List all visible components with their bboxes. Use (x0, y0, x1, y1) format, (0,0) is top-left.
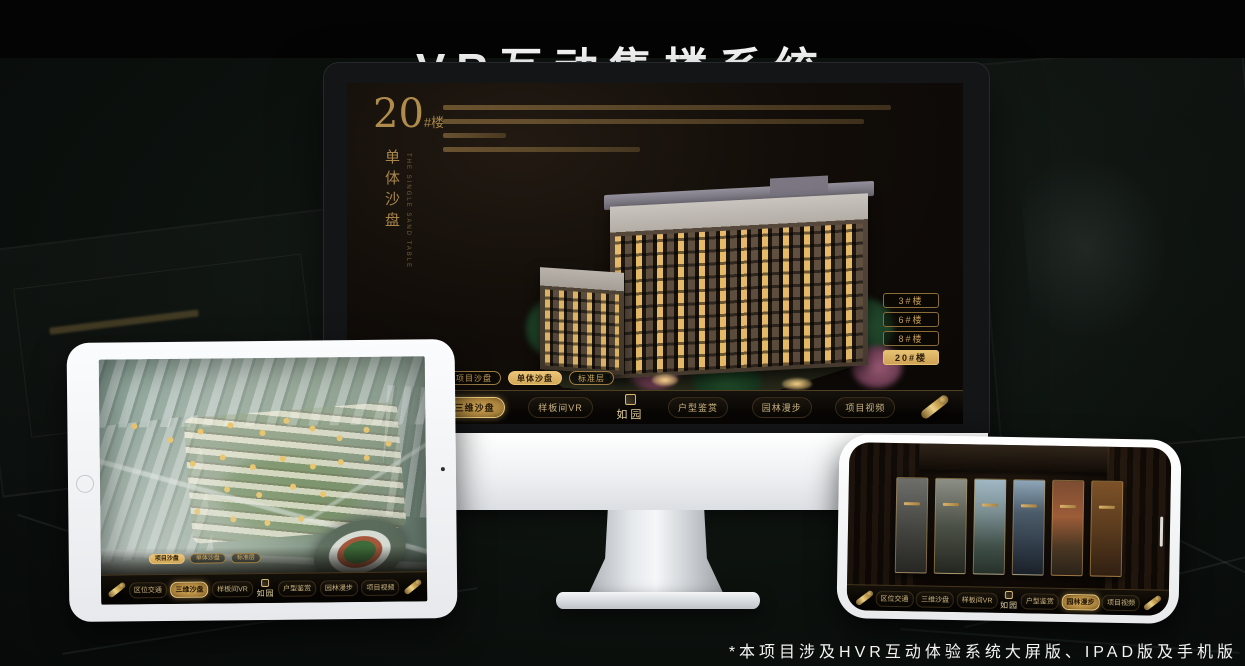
description-text-blur (443, 105, 891, 161)
sandbox-sub-tabs: 项目沙盘 单体沙盘 标准层 (447, 371, 614, 385)
phone-device: 区位交通 三维沙盘 样板间VR 如园 户型鉴赏 园林漫步 项目视频 (836, 434, 1181, 624)
nav-item-showroom-vr[interactable]: 样板间VR (957, 592, 998, 609)
footnote: *本项目涉及HVR互动体验系统大屏版、IPAD版及手机版 (729, 638, 1237, 662)
tab-standard-floor[interactable]: 标准层 (569, 371, 614, 385)
nav-item-location-traffic[interactable]: 区位交通 (875, 590, 913, 607)
nav-item-garden-walk[interactable]: 园林漫步 (752, 397, 812, 418)
nav-item-3d-sandbox[interactable]: 三维沙盘 (170, 581, 208, 597)
pavilion-beam (919, 443, 1109, 472)
tab-single-sandbox[interactable]: 单体沙盘 (508, 371, 562, 385)
nav-item-showroom-vr[interactable]: 样板间VR (212, 581, 253, 597)
scroll-icon[interactable] (855, 590, 873, 606)
card-caption (1021, 504, 1037, 507)
building-button-8[interactable]: 8#楼 (883, 331, 939, 346)
nav-item-garden-walk[interactable]: 园林漫步 (320, 580, 358, 596)
nav-item-garden-walk[interactable]: 园林漫步 (1061, 593, 1099, 610)
home-button[interactable] (76, 474, 94, 492)
tab-project-sandbox[interactable]: 项目沙盘 (149, 554, 185, 564)
building-heading: 20#楼 (373, 91, 444, 137)
plaque-text-blur (49, 310, 199, 335)
gallery-card[interactable] (934, 478, 968, 575)
tab-standard-floor[interactable]: 标准层 (231, 553, 261, 563)
brand-logo-text: 如园 (256, 587, 274, 598)
nav-item-floorplan-gallery[interactable]: 户型鉴赏 (668, 397, 728, 418)
building-penthouse (770, 175, 828, 194)
building-wing (540, 267, 624, 375)
scroll-icon[interactable] (1143, 595, 1161, 611)
brand-logo-text: 如园 (616, 406, 644, 422)
card-caption (943, 503, 959, 506)
nav-item-showroom-vr[interactable]: 样板间VR (528, 397, 593, 418)
camera-icon (441, 467, 445, 471)
card-caption (904, 502, 920, 505)
scroll-icon[interactable] (107, 582, 125, 598)
window-grid (545, 289, 619, 370)
nav-item-project-video[interactable]: 项目视频 (1102, 594, 1140, 611)
card-caption (1099, 506, 1115, 509)
brand-logo: 如园 (616, 394, 644, 422)
ground-light (652, 374, 678, 386)
nav-item-3d-sandbox[interactable]: 三维沙盘 (916, 591, 954, 608)
building-button-20[interactable]: 20#楼 (883, 350, 939, 365)
nav-item-project-video[interactable]: 项目视频 (361, 579, 399, 595)
gallery-card[interactable] (1012, 479, 1046, 576)
scroll-icon[interactable] (919, 395, 948, 421)
nav-item-floorplan-gallery[interactable]: 户型鉴赏 (278, 580, 316, 596)
nav-item-project-video[interactable]: 项目视频 (835, 397, 895, 418)
building-selector: 3#楼 6#楼 8#楼 20#楼 (883, 293, 939, 365)
tablet-nav-area: 项目沙盘 单体沙盘 标准层 区位交通 三维沙盘 样板间VR 如园 户型鉴赏 园林… (101, 545, 428, 604)
tablet-screen: 项目沙盘 单体沙盘 标准层 区位交通 三维沙盘 样板间VR 如园 户型鉴赏 园林… (99, 356, 428, 604)
poster: VR互动售楼系统 20#楼 单体沙盘 THE SINGLE SAND TABLE (0, 0, 1245, 666)
main-nav-bar: 区位交通 三维沙盘 样板间VR 如园 户型鉴赏 园林漫步 项目视频 (101, 571, 427, 604)
gallery-card[interactable] (973, 478, 1007, 575)
building-button-6[interactable]: 6#楼 (883, 312, 939, 327)
monitor-base (556, 592, 760, 609)
tab-single-sandbox[interactable]: 单体沙盘 (190, 553, 226, 563)
tab-project-sandbox[interactable]: 项目沙盘 (447, 371, 501, 385)
gallery-card[interactable] (895, 477, 929, 574)
gallery-card[interactable] (1051, 480, 1085, 577)
building-markers[interactable] (131, 423, 137, 429)
ground-light (782, 378, 812, 390)
building-number-suffix: #楼 (424, 115, 444, 130)
section-subtitle-en: THE SINGLE SAND TABLE (405, 153, 411, 269)
brand-logo: 如园 (1000, 590, 1018, 610)
brand-logo: 如园 (256, 578, 274, 598)
main-nav-bar: 区位交通 三维沙盘 样板间VR 如园 户型鉴赏 园林漫步 项目视频 (847, 584, 1169, 616)
monitor-stand (589, 510, 723, 598)
section-subtitle: 单体沙盘 (381, 149, 402, 233)
river-glow (1017, 140, 1184, 352)
seal-icon (625, 394, 636, 405)
gallery-cards (895, 477, 1124, 577)
card-caption (1060, 505, 1076, 508)
brand-logo-text: 如园 (1000, 599, 1018, 610)
building-main (610, 193, 868, 379)
nav-item-floorplan-gallery[interactable]: 户型鉴赏 (1021, 593, 1059, 610)
tablet-device: 项目沙盘 单体沙盘 标准层 区位交通 三维沙盘 样板间VR 如园 户型鉴赏 园林… (67, 339, 458, 622)
building-number: 20 (373, 91, 424, 137)
sandbox-sub-tabs: 项目沙盘 单体沙盘 标准层 (149, 553, 261, 564)
card-caption (982, 504, 998, 507)
gallery-card[interactable] (1090, 480, 1124, 577)
seal-icon (1005, 590, 1013, 598)
background-screenshot-panel (967, 41, 1245, 460)
scroll-icon[interactable] (403, 579, 421, 595)
home-indicator[interactable] (1160, 517, 1164, 547)
seal-icon (261, 578, 269, 586)
nav-item-location-traffic[interactable]: 区位交通 (129, 582, 167, 598)
phone-screen: 区位交通 三维沙盘 样板间VR 如园 户型鉴赏 园林漫步 项目视频 (847, 442, 1172, 616)
window-grid (615, 224, 863, 375)
building-button-3[interactable]: 3#楼 (883, 293, 939, 308)
